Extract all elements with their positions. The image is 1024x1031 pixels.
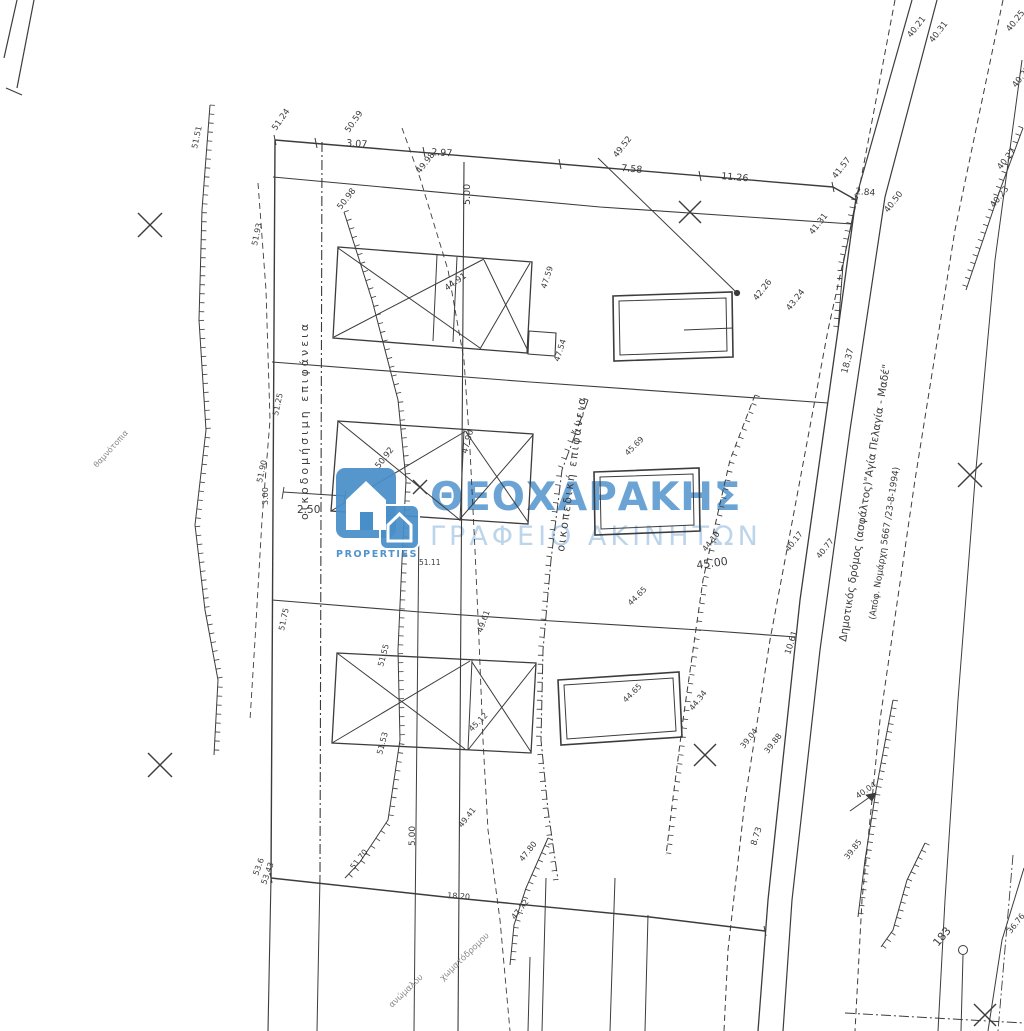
hatch-tick [889, 724, 894, 725]
brand-logo: PROPERTIES [336, 468, 431, 568]
elevation-label: 7.58 [621, 163, 643, 176]
elevation-label: 39.88 [762, 732, 783, 756]
hatch-tick [680, 746, 685, 747]
hatch-tick [983, 224, 988, 226]
elevation-label: 40.21 [905, 15, 928, 40]
hatch-tick [986, 217, 991, 219]
elevation-label: 47.59 [539, 265, 555, 290]
hatch-tick [198, 553, 203, 554]
hatch-tick [673, 799, 678, 800]
hatch-tick [704, 576, 709, 577]
survey-point [734, 290, 739, 295]
hatch-tick [962, 285, 967, 287]
hatch-tick [381, 831, 385, 834]
hatch-tick [197, 544, 202, 545]
hatch-tick [893, 700, 898, 701]
hatch-tick [988, 209, 993, 211]
hatch-tick [390, 366, 395, 367]
hatch-tick [1016, 134, 1021, 136]
elevation-label: 41.31 [807, 212, 830, 237]
hatch-tick [918, 857, 922, 859]
hatch-tick [196, 535, 201, 536]
hatch-tick [965, 277, 970, 279]
hatch-tick [883, 755, 888, 756]
plan-line [645, 915, 648, 1031]
elevation-label: 51.75 [277, 607, 291, 631]
hatch-tick [845, 230, 850, 231]
hatch-tick [891, 932, 895, 935]
hatch-tick [700, 603, 705, 604]
hatch-tick [719, 506, 724, 507]
hatch-tick [693, 648, 698, 649]
hatch-tick [553, 879, 558, 880]
elevation-label: 18.37 [840, 347, 856, 374]
elevation-label: 10.61 [783, 630, 800, 656]
hatch-tick [201, 473, 206, 474]
hatch-tick [755, 395, 760, 397]
hatch-tick [549, 852, 554, 853]
hatch-tick [878, 779, 883, 780]
hatch-tick [550, 861, 555, 862]
hatch-tick [736, 445, 741, 447]
plan-line [600, 474, 694, 529]
elevation-label: 47.72 [509, 898, 530, 922]
plan-line [938, 60, 1022, 1031]
elevation-label: 44.65 [621, 682, 644, 705]
hatch-tick [389, 815, 394, 816]
hatch-tick [908, 879, 912, 881]
hatch-tick [915, 865, 919, 867]
elevation-label: ανώμαλου [386, 972, 425, 1010]
hatch-tick [698, 612, 703, 613]
hatch-tick [360, 262, 365, 264]
plan-line [684, 328, 733, 330]
plan-line [273, 177, 852, 224]
site-plan-page: ΘΕΟΧΑΡΑΚΗΣ ΓΡΑΦΕΙΟ ΑΚΙΝΗΤΩΝ 51.243.0750.… [0, 0, 1024, 1031]
hatch-tick [687, 692, 692, 693]
hatch-tick [715, 524, 720, 525]
hatch-tick [383, 340, 388, 341]
hatch-tick [399, 744, 404, 745]
hatch-tick [674, 790, 679, 791]
plan-line [528, 957, 530, 1031]
hatch-tick [925, 843, 929, 845]
hatch-tick [200, 482, 205, 483]
plot-area-label: οικοπεδική επιφάνεια [554, 395, 589, 553]
elevation-label: 51.70 [348, 848, 369, 872]
hatch-tick [561, 457, 566, 459]
hatch-tick [378, 323, 383, 324]
hatch-tick [376, 838, 380, 841]
hatch-tick [672, 808, 677, 809]
hatch-tick [380, 331, 385, 332]
hatch-tick [880, 771, 885, 772]
hatch-tick [975, 247, 980, 249]
plan-line [272, 362, 828, 403]
hatch-tick [839, 262, 844, 263]
hatch-tick [721, 497, 726, 498]
hatch-tick [208, 624, 213, 625]
hatch-tick [863, 873, 868, 874]
hatch-tick [690, 674, 695, 675]
hatch-tick [686, 701, 691, 702]
hatch-tick [903, 894, 908, 895]
hatch-tick [371, 846, 375, 849]
hatch-tick [843, 238, 848, 239]
hatch-tick [556, 476, 561, 477]
hatch-tick [905, 887, 910, 888]
hatch-tick [868, 842, 873, 843]
plan-line [433, 255, 437, 341]
hatch-tick [860, 897, 865, 898]
hatch-tick [973, 255, 978, 257]
hatch-tick [199, 491, 204, 492]
plan-line [855, 0, 1003, 1031]
hatch-tick [544, 817, 549, 818]
hatch-tick [394, 384, 399, 385]
plot-west-boundary [271, 140, 275, 878]
hatch-tick [397, 761, 402, 762]
plan-line [480, 263, 530, 349]
hatch-tick [547, 835, 552, 836]
hatch-tick [203, 589, 208, 590]
pool-1-outline [613, 292, 733, 361]
plan-line [272, 600, 796, 637]
hatch-tick [842, 246, 847, 247]
hatch-tick [1013, 141, 1018, 143]
elevation-label: 49.52 [611, 135, 634, 160]
hatch-tick [203, 455, 208, 456]
hatch-tick [922, 850, 926, 852]
plan-line [845, 1013, 1024, 1023]
buildable-area-label: οικοδομήσιμη επιφάνεια [298, 321, 311, 520]
hatch-tick [204, 598, 209, 599]
hatch-tick [393, 788, 398, 789]
elevation-label: 40.23 [988, 185, 1011, 210]
hatch-tick [549, 538, 554, 539]
hatch-tick [697, 621, 702, 622]
hatch-tick [358, 253, 363, 255]
hatch-tick [214, 659, 219, 660]
hatch-tick [349, 228, 354, 230]
elevation-label: 45.12 [467, 711, 490, 734]
hatch-tick [745, 420, 750, 422]
hatch-tick [209, 633, 214, 634]
plan-line [468, 664, 536, 750]
elevation-label: 42.26 [751, 278, 774, 303]
hatch-tick [670, 826, 675, 827]
elevation-label: 45.00 [696, 555, 729, 572]
road-name-label: Δημοτικός δρόμος (ασφάλτος)"Αγία Πελαγία… [837, 363, 893, 642]
plan-line [6, 88, 22, 95]
hatch-tick [688, 683, 693, 684]
hatch-tick [978, 239, 983, 241]
plan-line [724, 0, 895, 1031]
elevation-label: 40.25 [1004, 9, 1024, 34]
elevation-label: 51.24 [270, 107, 292, 133]
hatch-tick [532, 875, 537, 877]
hatch-tick [211, 642, 216, 643]
hatch-tick [739, 437, 744, 439]
hatch-tick [205, 607, 210, 608]
hatch-tick [702, 585, 707, 586]
hatch-tick [752, 403, 757, 405]
plan-line [619, 298, 727, 355]
hatch-tick [369, 288, 374, 290]
hatch-tick [701, 594, 706, 595]
elevation-label: 5.00 [408, 826, 418, 846]
hatch-tick [374, 305, 379, 306]
hatch-tick [396, 392, 401, 393]
hatch-tick [391, 797, 396, 798]
plan-line [610, 878, 615, 1031]
hatch-tick [886, 739, 891, 740]
hatch-tick [864, 866, 869, 867]
hatch-tick [892, 708, 897, 709]
elevation-label: θαμνότοπια [91, 428, 130, 470]
hatch-tick [553, 502, 558, 503]
elevation-label: 51.51 [190, 125, 204, 149]
elevation-label: 50.98 [335, 187, 358, 212]
elevation-label: 3.00 [261, 487, 270, 505]
hatch-tick [710, 550, 715, 551]
hatch-tick [554, 494, 559, 495]
hatch-tick [395, 770, 400, 771]
elevation-label: 40.17 [783, 530, 804, 554]
plan-line [998, 855, 1013, 1031]
hatch-tick [1018, 126, 1023, 128]
hatch-tick [970, 262, 975, 264]
hatch-tick [551, 520, 556, 521]
hatch-tick [968, 270, 973, 272]
elevation-label: 44.10 [700, 530, 721, 554]
leader-arrow-line [598, 158, 735, 291]
elevation-label: 40.22 [1010, 65, 1024, 90]
hatch-tick [862, 881, 867, 882]
hatch-tick [911, 872, 915, 874]
hatch-tick [199, 562, 204, 563]
contour-hatch-line [666, 395, 755, 855]
elevation-label: 2.84 [855, 187, 876, 199]
hatch-tick [363, 271, 368, 273]
plan-line [268, 878, 271, 1031]
hatch-tick [676, 773, 681, 774]
contour-hatch-line [881, 843, 925, 947]
plan-line [484, 260, 528, 351]
hatch-tick [897, 917, 902, 918]
hatch-tick [355, 245, 360, 247]
hatch-tick [196, 518, 201, 519]
hatch-tick [742, 429, 747, 431]
hatch-tick [723, 489, 728, 490]
hatch-tick [899, 910, 904, 911]
site-plan-drawing: 51.243.0750.592.9749.987.5849.5211.2641.… [0, 0, 1024, 1031]
hatch-tick [679, 755, 684, 756]
hatch-tick [677, 764, 682, 765]
plan-line [250, 183, 270, 720]
plan-line [414, 520, 419, 1031]
hatch-tick [548, 547, 553, 548]
hatch-tick [675, 781, 680, 782]
hatch-tick [666, 853, 671, 854]
hatch-tick [195, 526, 200, 527]
logo-properties-text: PROPERTIES [336, 549, 418, 560]
hatch-tick [725, 480, 730, 481]
hatch-tick [371, 296, 376, 298]
hatch-tick [198, 500, 203, 501]
hatch-tick [398, 753, 403, 754]
plan-line [856, 0, 912, 198]
plan-line [4, 0, 17, 58]
hatch-tick [887, 939, 891, 942]
hatch-tick [202, 580, 207, 581]
hatch-tick [874, 802, 879, 803]
elevation-label: 51.53 [375, 731, 390, 755]
plan-line [332, 661, 470, 743]
plan-line [468, 660, 472, 750]
hatch-tick [869, 834, 874, 835]
hatch-tick [538, 860, 543, 862]
hatch-tick [999, 179, 1004, 181]
hatch-tick [732, 454, 737, 456]
elevation-label: 50.59 [343, 109, 365, 135]
hatch-tick [390, 806, 395, 807]
hatch-tick [200, 571, 205, 572]
hatch-tick [691, 665, 696, 666]
plan-line [334, 259, 484, 337]
hatch-tick [668, 835, 673, 836]
hatch-tick [535, 867, 540, 869]
elevation-label: 39.85 [842, 838, 863, 862]
plan-line [564, 678, 676, 739]
hatch-tick [981, 232, 986, 234]
elevation-label: 18.20 [447, 891, 470, 902]
hatch-tick [546, 556, 551, 557]
hatch-tick [387, 357, 392, 358]
hatch-tick [840, 254, 845, 255]
hatch-tick [717, 515, 722, 516]
hatch-tick [881, 763, 886, 764]
hatch-tick [548, 844, 553, 845]
hatch-tick [205, 437, 210, 438]
plan-line [17, 0, 34, 88]
elevation-label: 11.26 [721, 171, 749, 184]
hatch-tick [861, 889, 866, 890]
hatch-tick [692, 657, 697, 658]
pool-3-outline [558, 672, 682, 745]
elevation-label: 5.00 [462, 184, 473, 205]
hatch-tick [550, 529, 555, 530]
hatch-tick [749, 412, 754, 414]
hatch-tick [197, 509, 202, 510]
hatch-tick [394, 779, 399, 780]
hatch-tick [882, 945, 886, 948]
hatch-tick [542, 853, 547, 855]
hatch-tick [344, 210, 349, 212]
hatch-tick [695, 639, 700, 640]
hatch-tick [392, 375, 397, 376]
elevation-label: 44.34 [687, 689, 708, 713]
hatch-tick [671, 817, 676, 818]
hatch-tick [529, 882, 534, 884]
elevation-label: χωματόδρομου [437, 930, 491, 983]
elevation-label: 39.04 [738, 727, 759, 751]
elevation-label: 3.07 [346, 138, 368, 150]
plan-line [542, 878, 546, 1031]
hatch-tick [526, 889, 531, 891]
hatch-tick [552, 870, 557, 871]
hatch-tick [858, 913, 863, 914]
hatch-tick [729, 462, 734, 463]
hatch-tick [667, 844, 672, 845]
elevation-label: 41.57 [830, 156, 853, 181]
hatch-tick [890, 716, 895, 717]
elevation-label: 8.73 [749, 826, 764, 847]
contour-hatch-line [195, 105, 218, 755]
plan-line [528, 331, 556, 356]
hatch-tick [850, 207, 855, 208]
hatch-tick [684, 710, 689, 711]
hatch-tick [202, 464, 207, 465]
hatch-tick [683, 719, 688, 720]
hatch-tick [347, 219, 352, 221]
elevation-label: 51.90 [255, 459, 269, 483]
logo-tile-small [381, 506, 418, 548]
hatch-tick [859, 905, 864, 906]
hatch-tick [352, 236, 357, 238]
hatch-tick [213, 651, 218, 652]
hatch-tick [887, 731, 892, 732]
elevation-label: 45.69 [623, 435, 646, 458]
hatch-tick [884, 747, 889, 748]
elevation-label: 49.98 [414, 151, 437, 176]
hatch-tick [875, 794, 880, 795]
hatch-tick [727, 471, 732, 472]
hatch-tick [865, 858, 870, 859]
hatch-tick [558, 466, 563, 468]
hatch-tick [848, 215, 853, 216]
elevation-label: 43.24 [784, 288, 807, 313]
hatch-tick [545, 845, 550, 847]
hatch-tick [901, 902, 906, 903]
hatch-tick [545, 826, 550, 827]
hatch-tick [366, 279, 371, 281]
hatch-tick [216, 668, 221, 669]
hatch-tick [894, 925, 899, 926]
hatch-tick [218, 677, 223, 678]
hatch-tick [555, 485, 560, 486]
hatch-tick [682, 728, 687, 729]
survey-point [959, 946, 968, 955]
elevation-label: 47.54 [552, 338, 568, 363]
hatch-tick [206, 615, 211, 616]
elevation-label: 183 [930, 924, 953, 948]
hatch-tick [349, 874, 353, 877]
hatch-tick [552, 511, 557, 512]
plan-line [282, 487, 284, 499]
plan-line [833, 187, 856, 200]
elevation-label: 44.65 [626, 585, 649, 608]
hatch-tick [872, 818, 877, 819]
hatch-tick [386, 823, 390, 826]
hatch-tick [385, 349, 390, 350]
hatch-tick [873, 810, 878, 811]
plan-line [317, 876, 320, 1031]
elevation-label: 47.80 [517, 840, 538, 864]
house-icon [381, 506, 418, 548]
hatch-tick [870, 826, 875, 827]
hatch-tick [204, 446, 209, 447]
